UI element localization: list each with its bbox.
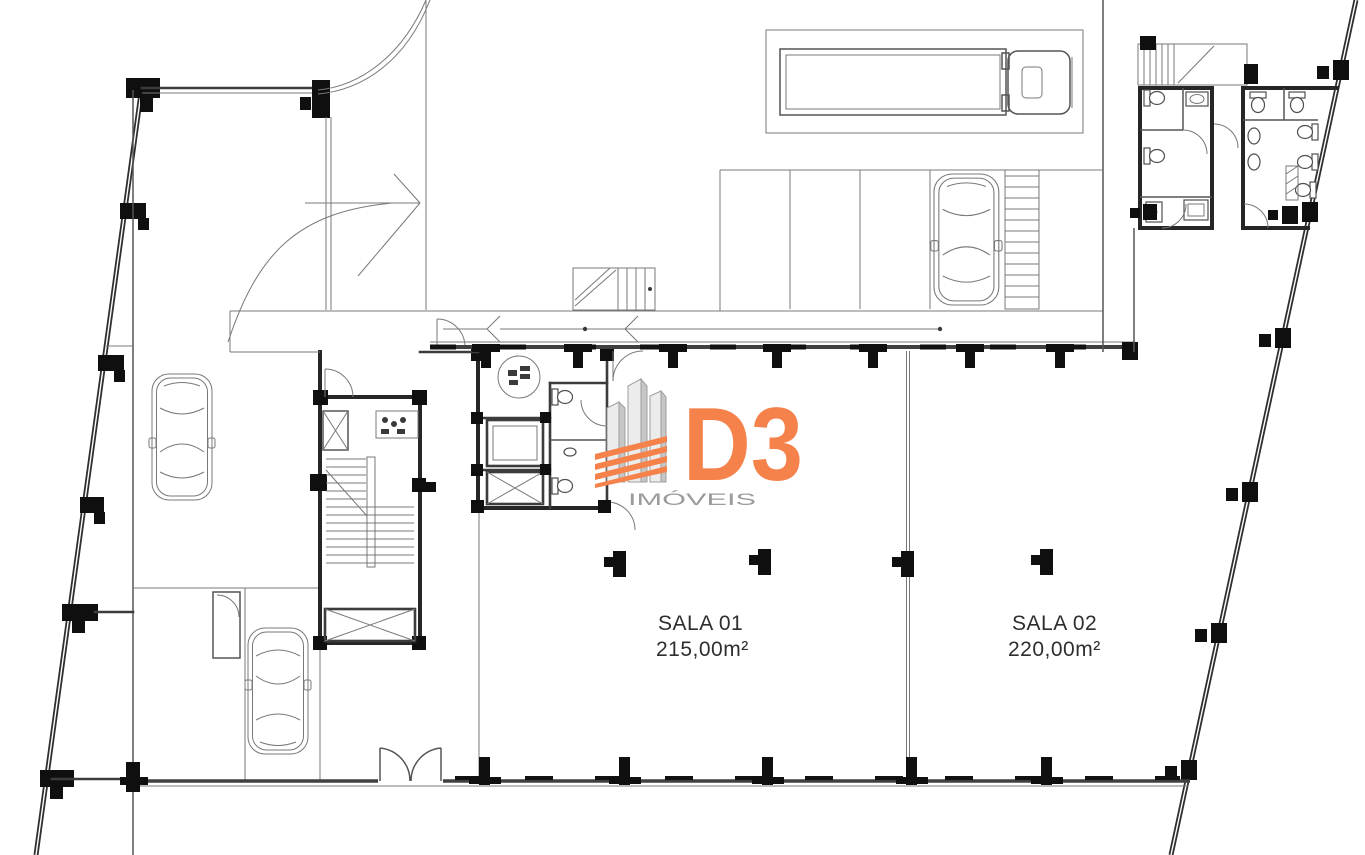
car-icon bbox=[245, 628, 311, 754]
left-side-walls bbox=[52, 90, 320, 855]
logo-brand-text: D3 bbox=[683, 387, 803, 503]
sala-02-name: SALA 02 bbox=[1012, 612, 1097, 635]
direction-arrow-icon bbox=[305, 174, 420, 276]
toilet-icon bbox=[552, 478, 573, 494]
double-door-icon bbox=[380, 748, 441, 781]
toilet-icon bbox=[1250, 92, 1266, 113]
wc-closet bbox=[213, 592, 240, 658]
direction-arrow-icon bbox=[443, 316, 942, 342]
elevator-x-icon bbox=[323, 411, 348, 450]
door-arc-icon bbox=[1244, 204, 1268, 228]
truck-dock-parking bbox=[573, 30, 1103, 311]
toilet-icon bbox=[1144, 148, 1165, 164]
curb-curve bbox=[318, 0, 426, 90]
truck-icon bbox=[780, 49, 1072, 115]
elevator-icon bbox=[487, 420, 543, 466]
hatched-walkway-icon bbox=[1286, 166, 1298, 200]
door-arc-icon bbox=[1214, 124, 1238, 148]
toilet-icon bbox=[1298, 124, 1319, 140]
sink-icon bbox=[564, 448, 576, 456]
toilet-icon bbox=[1298, 154, 1319, 170]
storefront-bottom bbox=[120, 748, 1190, 792]
floor-plan-canvas: D3 IMÓVEIS SALA 01 215,00m² SALA 02 220,… bbox=[0, 0, 1365, 855]
brand-logo: D3 IMÓVEIS bbox=[595, 379, 803, 509]
storefront-columns bbox=[120, 757, 1063, 792]
toilet-icon bbox=[552, 389, 573, 405]
elevator-x-icon bbox=[325, 609, 415, 641]
sink-icon bbox=[1248, 128, 1260, 144]
utility-meters bbox=[376, 411, 418, 438]
vehicles bbox=[149, 174, 1002, 754]
sala-01-area: 215,00m² bbox=[656, 638, 749, 661]
restrooms-top-right bbox=[1130, 36, 1337, 228]
driveway-entry bbox=[142, 0, 430, 342]
door-arc-icon bbox=[613, 351, 643, 381]
sala-01-name: SALA 01 bbox=[658, 612, 743, 635]
interior-columns bbox=[604, 549, 1053, 577]
door-arc-icon bbox=[581, 400, 607, 426]
toilet-icon bbox=[1296, 182, 1317, 198]
door-arc-icon bbox=[217, 595, 239, 617]
toilet-icon bbox=[1144, 90, 1165, 106]
hatched-walkway-icon bbox=[1005, 170, 1039, 309]
logo-tagline-text: IMÓVEIS bbox=[628, 490, 756, 509]
toilet-icon bbox=[1289, 92, 1305, 113]
elevator-x-icon bbox=[487, 472, 543, 504]
sink-icon bbox=[1248, 154, 1260, 170]
stairs-icon bbox=[1138, 44, 1247, 85]
room-labels: SALA 01 215,00m² SALA 02 220,00m² bbox=[656, 612, 1101, 661]
sala-02-area: 220,00m² bbox=[1008, 638, 1101, 661]
car-icon bbox=[931, 174, 1002, 305]
door-arc-icon bbox=[1162, 204, 1186, 228]
stairs-icon bbox=[326, 457, 414, 567]
round-table-icon bbox=[498, 356, 540, 398]
door-arc-icon bbox=[325, 369, 353, 397]
stair-core bbox=[310, 352, 436, 781]
vehicle-path-curve bbox=[228, 203, 392, 342]
stairs-icon bbox=[573, 268, 655, 310]
door-arc-icon bbox=[437, 319, 465, 347]
car-icon bbox=[149, 374, 215, 500]
door-arc-icon bbox=[1183, 130, 1207, 154]
